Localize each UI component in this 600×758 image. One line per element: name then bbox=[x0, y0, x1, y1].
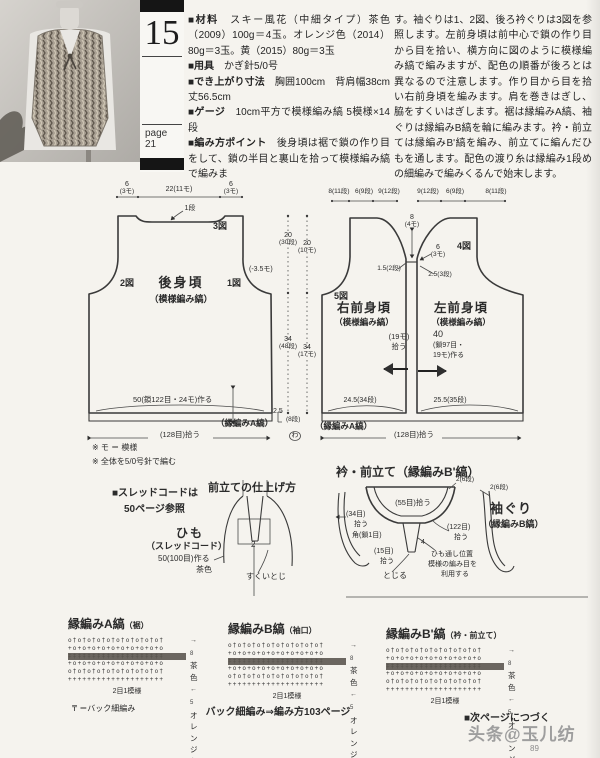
back-pickup: (128目)拾う bbox=[160, 431, 200, 439]
band-finishing-title: 前立ての仕上げ方 bbox=[208, 483, 296, 495]
cord-position-2: 模様の編み目を bbox=[428, 561, 477, 568]
band-pickup15: (15目) bbox=[374, 548, 393, 555]
chart-row: o†o†o†o†o†o†o†o†o†o† bbox=[228, 642, 346, 650]
band-4: 4 bbox=[421, 539, 425, 546]
chart-a-title: 縁編みA縞 bbox=[68, 617, 125, 631]
front-neck-seg2: 6(9段) bbox=[355, 189, 373, 196]
chart-bp-symbols: o†o†o†o†o†o†o†o†o†o† +o+o+o+o+o+o+o+o+o+… bbox=[386, 647, 504, 694]
armband-rows: 2(6段) bbox=[490, 485, 508, 492]
back-piece-title: 後身頃 bbox=[158, 276, 203, 290]
pattern-number: 15 bbox=[140, 13, 184, 53]
masthead-bottom-bar bbox=[140, 158, 184, 170]
chart-bp-title: 縁編みB'縞 bbox=[386, 627, 446, 641]
masthead: 15 page21 bbox=[140, 0, 184, 172]
row-number: 5 bbox=[190, 698, 196, 710]
back-cast-on: 50(鎖122目・24モ)作る bbox=[133, 396, 212, 404]
info-label: ■材料 bbox=[188, 15, 219, 26]
edging-chart-b: 縁編みB縞（袖口） o†o†o†o†o†o†o†o†o†o† +o+o+o+o+… bbox=[228, 620, 346, 701]
chart-b-repeat: 2目1模様 bbox=[228, 691, 346, 701]
front-neck-seg5: 6(9段) bbox=[446, 189, 464, 196]
knit-in-round: わ bbox=[292, 432, 299, 439]
info-text: スキー風花（中細タイプ）茶色（2009）100g＝4玉。オレンジ色（2014）8… bbox=[188, 15, 390, 57]
row-number: 8 bbox=[508, 659, 514, 671]
collar-pickup55: (55目)拾う bbox=[395, 499, 431, 507]
cord-position-1: ひも通し位置 bbox=[431, 551, 473, 558]
collar-rows: 2(6段) bbox=[456, 477, 474, 484]
color-label: オレンジ色 bbox=[350, 716, 358, 758]
row-arrow-icon: ← bbox=[190, 684, 199, 696]
color-label: 茶色 bbox=[190, 661, 198, 682]
cord-title: ひも bbox=[176, 527, 204, 540]
row-arrow-icon: ← bbox=[350, 689, 359, 701]
page-ref: page21 bbox=[145, 128, 167, 150]
folio-number: 89 bbox=[530, 745, 539, 753]
hem-band-cm: 2.5 bbox=[273, 408, 283, 415]
cord-color: 茶色 bbox=[196, 566, 212, 574]
seam-label: とじる bbox=[383, 572, 407, 580]
front-neck-seg3: 9(12段) bbox=[378, 189, 400, 196]
vest-photo bbox=[0, 0, 140, 162]
row-number: 8 bbox=[350, 654, 356, 666]
back-shoulder-width-moyo: (3モ) bbox=[120, 189, 134, 196]
right-front-width: 24.5(34段) bbox=[343, 397, 376, 404]
row-arrow-icon: → bbox=[508, 645, 517, 657]
note-hook: ※ 全体を5/0号針で編む bbox=[92, 458, 176, 466]
front-neck-depth-moyo: (4モ) bbox=[405, 222, 419, 229]
dim-armhole-moyo: (10モ) bbox=[298, 248, 316, 255]
cord-make: 50(100目)作る bbox=[158, 555, 210, 563]
left-front-stitch: （模様編み縞） bbox=[431, 318, 491, 327]
info-label: ■でき上がり寸法 bbox=[188, 77, 265, 88]
color-label: 茶色 bbox=[508, 671, 516, 692]
row-number: 8 bbox=[190, 649, 196, 661]
left-front-title: 左前身頃 bbox=[434, 302, 488, 315]
chart-row: o†o†o†o†o†o†o†o†o†o† bbox=[68, 637, 186, 645]
back-shoulder-width-r-moyo: (3モ) bbox=[224, 189, 238, 196]
right-front-stitch: （模様編み縞） bbox=[334, 318, 394, 327]
figure1-ref: 1図 bbox=[227, 279, 241, 288]
chart-b-colors: →8茶色 ←5オレンジ色 ←黄 ←1茶色 bbox=[350, 639, 359, 758]
back-edging-label: （縁編みA縞） bbox=[216, 419, 273, 428]
front-edging-label: （縁編みA縞） bbox=[315, 422, 372, 431]
chart-row: o†o†o†o†o†o†o†o†o†o† bbox=[386, 647, 504, 655]
front-neck-seg1: 8(11段) bbox=[328, 189, 349, 196]
hem-band-rows: (8段) bbox=[286, 417, 300, 424]
figure4-ref: 4図 bbox=[457, 242, 471, 251]
watermark: 头条@玉儿纺 bbox=[468, 726, 576, 744]
page-word: page bbox=[145, 128, 167, 139]
edging-chart-b-prime: 縁編みB'縞（衿・前立て） o†o†o†o†o†o†o†o†o†o† +o+o+… bbox=[386, 625, 504, 706]
armhole-stitch: （縁編みB縞） bbox=[483, 520, 544, 529]
whip-seam: すくいとじ bbox=[246, 573, 286, 581]
chart-row: +o+o+o+o+o+o+o+o+o+o bbox=[68, 645, 186, 653]
chart-row: o†o†o†o†o†o†o†o†o†o† bbox=[386, 678, 504, 686]
chart-row: ++++++++++++++++++++ bbox=[386, 686, 504, 694]
figure3-ref: 3図 bbox=[213, 222, 227, 231]
band-pickup15-verb: 拾う bbox=[380, 558, 394, 565]
front-pickup19: (19モ) bbox=[389, 333, 410, 341]
dim-body-moyo: (17モ) bbox=[298, 352, 316, 359]
info-line: ■材料 スキー風花（中細タイプ）茶色（2009）100g＝4玉。オレンジ色（20… bbox=[188, 13, 390, 59]
chart-row: o†o†o†o†o†o†o†o†o†o† bbox=[68, 668, 186, 676]
chart-row: ++++++++++++++++++++ bbox=[68, 676, 186, 684]
chart-row: ++++++++++++++++++++ bbox=[228, 681, 346, 689]
front-make40-chain: (鎖97目・ bbox=[433, 342, 464, 349]
thread-cord-note: ■スレッドコードは bbox=[112, 489, 198, 500]
back-sc-reference: バック細編み⇒編み方103ページ bbox=[206, 708, 351, 719]
chart-row: +o+o+o+o+o+o+o+o+o+o bbox=[68, 660, 186, 668]
back-neck-width: 22(11モ) bbox=[166, 186, 193, 193]
schematic-drawing bbox=[0, 180, 600, 612]
scanned-pattern-page: 15 page21 ■材料 スキー風花（中細タイプ）茶色（2009）100g＝4… bbox=[0, 0, 600, 758]
chart-row: +o+o+o+o+o+o+o+o+o+o bbox=[386, 670, 504, 678]
chart-row-dark: ‡‡‡‡‡‡‡‡‡‡‡‡‡‡‡‡‡‡‡‡ bbox=[68, 653, 186, 661]
info-line: ■ゲージ 10cm平方で模様編み縞 5模様×14段 bbox=[188, 105, 390, 136]
row-arrow-icon: ← bbox=[508, 694, 517, 706]
front-make40: 40 bbox=[433, 330, 443, 339]
edging-chart-a: 縁編みA縞（裾） o†o†o†o†o†o†o†o†o†o† +o+o+o+o+o… bbox=[68, 615, 186, 696]
chart-a-symbols: o†o†o†o†o†o†o†o†o†o† +o+o+o+o+o+o+o+o+o+… bbox=[68, 637, 186, 684]
chart-row: +o+o+o+o+o+o+o+o+o+o bbox=[228, 650, 346, 658]
cord-position-3: 利用する bbox=[441, 571, 469, 578]
front-pickup19-verb: 拾う bbox=[392, 343, 407, 351]
info-label: ■用具 bbox=[188, 61, 214, 72]
chart-row: +o+o+o+o+o+o+o+o+o+o bbox=[228, 665, 346, 673]
note-mo: ※ モ ＝ 模様 bbox=[92, 444, 137, 452]
divider bbox=[142, 56, 182, 57]
row-number: 5 bbox=[350, 703, 356, 715]
chart-row-dark: ‡‡‡‡‡‡‡‡‡‡‡‡‡‡‡‡‡‡‡‡ bbox=[386, 663, 504, 671]
divider bbox=[142, 124, 182, 125]
masthead-top-bar bbox=[140, 0, 184, 12]
front-make40-moyo: 19モ)作る bbox=[433, 352, 464, 359]
chart-a-colors: →8茶色 ←5オレンジ色 ←黄 ←1茶色 bbox=[190, 634, 199, 758]
thread-cord-page: 50ページ参照 bbox=[124, 505, 185, 516]
back-neck-rows: 1段 bbox=[185, 205, 196, 212]
front-neck-seg6: 8(11段) bbox=[485, 189, 506, 196]
collar-pickup34-verb: 拾う bbox=[354, 521, 368, 528]
back-sc-legend: ₸ ＝バック細編み bbox=[72, 705, 135, 713]
front-pickup128: (128目)拾う bbox=[394, 431, 434, 439]
continued-note: ■次ページにつづく bbox=[464, 714, 550, 725]
info-line: ■でき上がり寸法 胸囲100cm 背肩幅38cm 丈56.5cm bbox=[188, 75, 390, 106]
chart-row: +o+o+o+o+o+o+o+o+o+o bbox=[386, 655, 504, 663]
chart-row: o†o†o†o†o†o†o†o†o†o† bbox=[228, 673, 346, 681]
armhole-pickup122: (122目) bbox=[447, 524, 470, 531]
instructions-column: す。袖ぐりは1、2図、後ろ衿ぐりは3図を参照します。左前身頃は前中心で鎖の作り目… bbox=[394, 13, 592, 182]
materials-block: ■材料 スキー風花（中細タイプ）茶色（2009）100g＝4玉。オレンジ色（20… bbox=[188, 13, 390, 182]
chart-a-repeat: 2目1模様 bbox=[68, 686, 186, 696]
collar-pickup34: (34目) bbox=[346, 511, 365, 518]
chart-bp-repeat: 2目1模様 bbox=[386, 696, 504, 706]
chart-bp-sub: （衿・前立て） bbox=[446, 631, 502, 640]
dim-body-rows: (48段) bbox=[279, 344, 297, 351]
chart-b-title: 縁編みB縞 bbox=[228, 622, 285, 636]
chart-b-symbols: o†o†o†o†o†o†o†o†o†o† +o+o+o+o+o+o+o+o+o+… bbox=[228, 642, 346, 689]
back-piece-stitch: （模様編み縞） bbox=[149, 295, 212, 304]
info-text: かぎ針5/0号 bbox=[214, 61, 278, 72]
finish-2: 2 bbox=[251, 541, 255, 549]
color-label: オレンジ色 bbox=[190, 711, 198, 758]
front-neck-seg4: 9(12段) bbox=[417, 189, 439, 196]
color-label: 茶色 bbox=[350, 666, 358, 687]
armhole-pickup122-verb: 拾う bbox=[454, 534, 468, 541]
chart-b-sub: （袖口） bbox=[285, 626, 317, 635]
figure2-ref: 2図 bbox=[120, 279, 134, 288]
front-band-25: 2.5(3段) bbox=[428, 272, 451, 279]
cord-type: （スレッドコード） bbox=[146, 542, 227, 551]
front-band-15: 1.5(2段) bbox=[377, 266, 400, 273]
row-arrow-icon: → bbox=[190, 635, 199, 647]
info-line: ■編み方ポイント 後身頃は裾で鎖の作り目をして、鎖の半目と裏山を拾って模様編み縞… bbox=[188, 136, 390, 182]
dim-armhole-rows: (30段) bbox=[279, 240, 297, 247]
page-number: 21 bbox=[145, 139, 156, 150]
back-decrease-note: (-3.5モ) bbox=[249, 266, 273, 273]
info-line: ■用具 かぎ針5/0号 bbox=[188, 59, 390, 74]
front-notch-moyo: (3モ) bbox=[431, 252, 445, 259]
left-front-width: 25.5(35段) bbox=[433, 397, 466, 404]
chart-row-dark: ‡‡‡‡‡‡‡‡‡‡‡‡‡‡‡‡‡‡‡‡ bbox=[228, 658, 346, 666]
chart-a-sub: （裾） bbox=[125, 621, 149, 630]
info-label: ■編み方ポイント bbox=[188, 138, 267, 149]
info-label: ■ゲージ bbox=[188, 107, 225, 118]
right-front-title: 右前身頃 bbox=[337, 302, 391, 315]
collar-corner: 角(鎖1目) bbox=[352, 532, 382, 539]
row-arrow-icon: → bbox=[350, 640, 359, 652]
armhole-title: 袖ぐり bbox=[490, 502, 532, 516]
